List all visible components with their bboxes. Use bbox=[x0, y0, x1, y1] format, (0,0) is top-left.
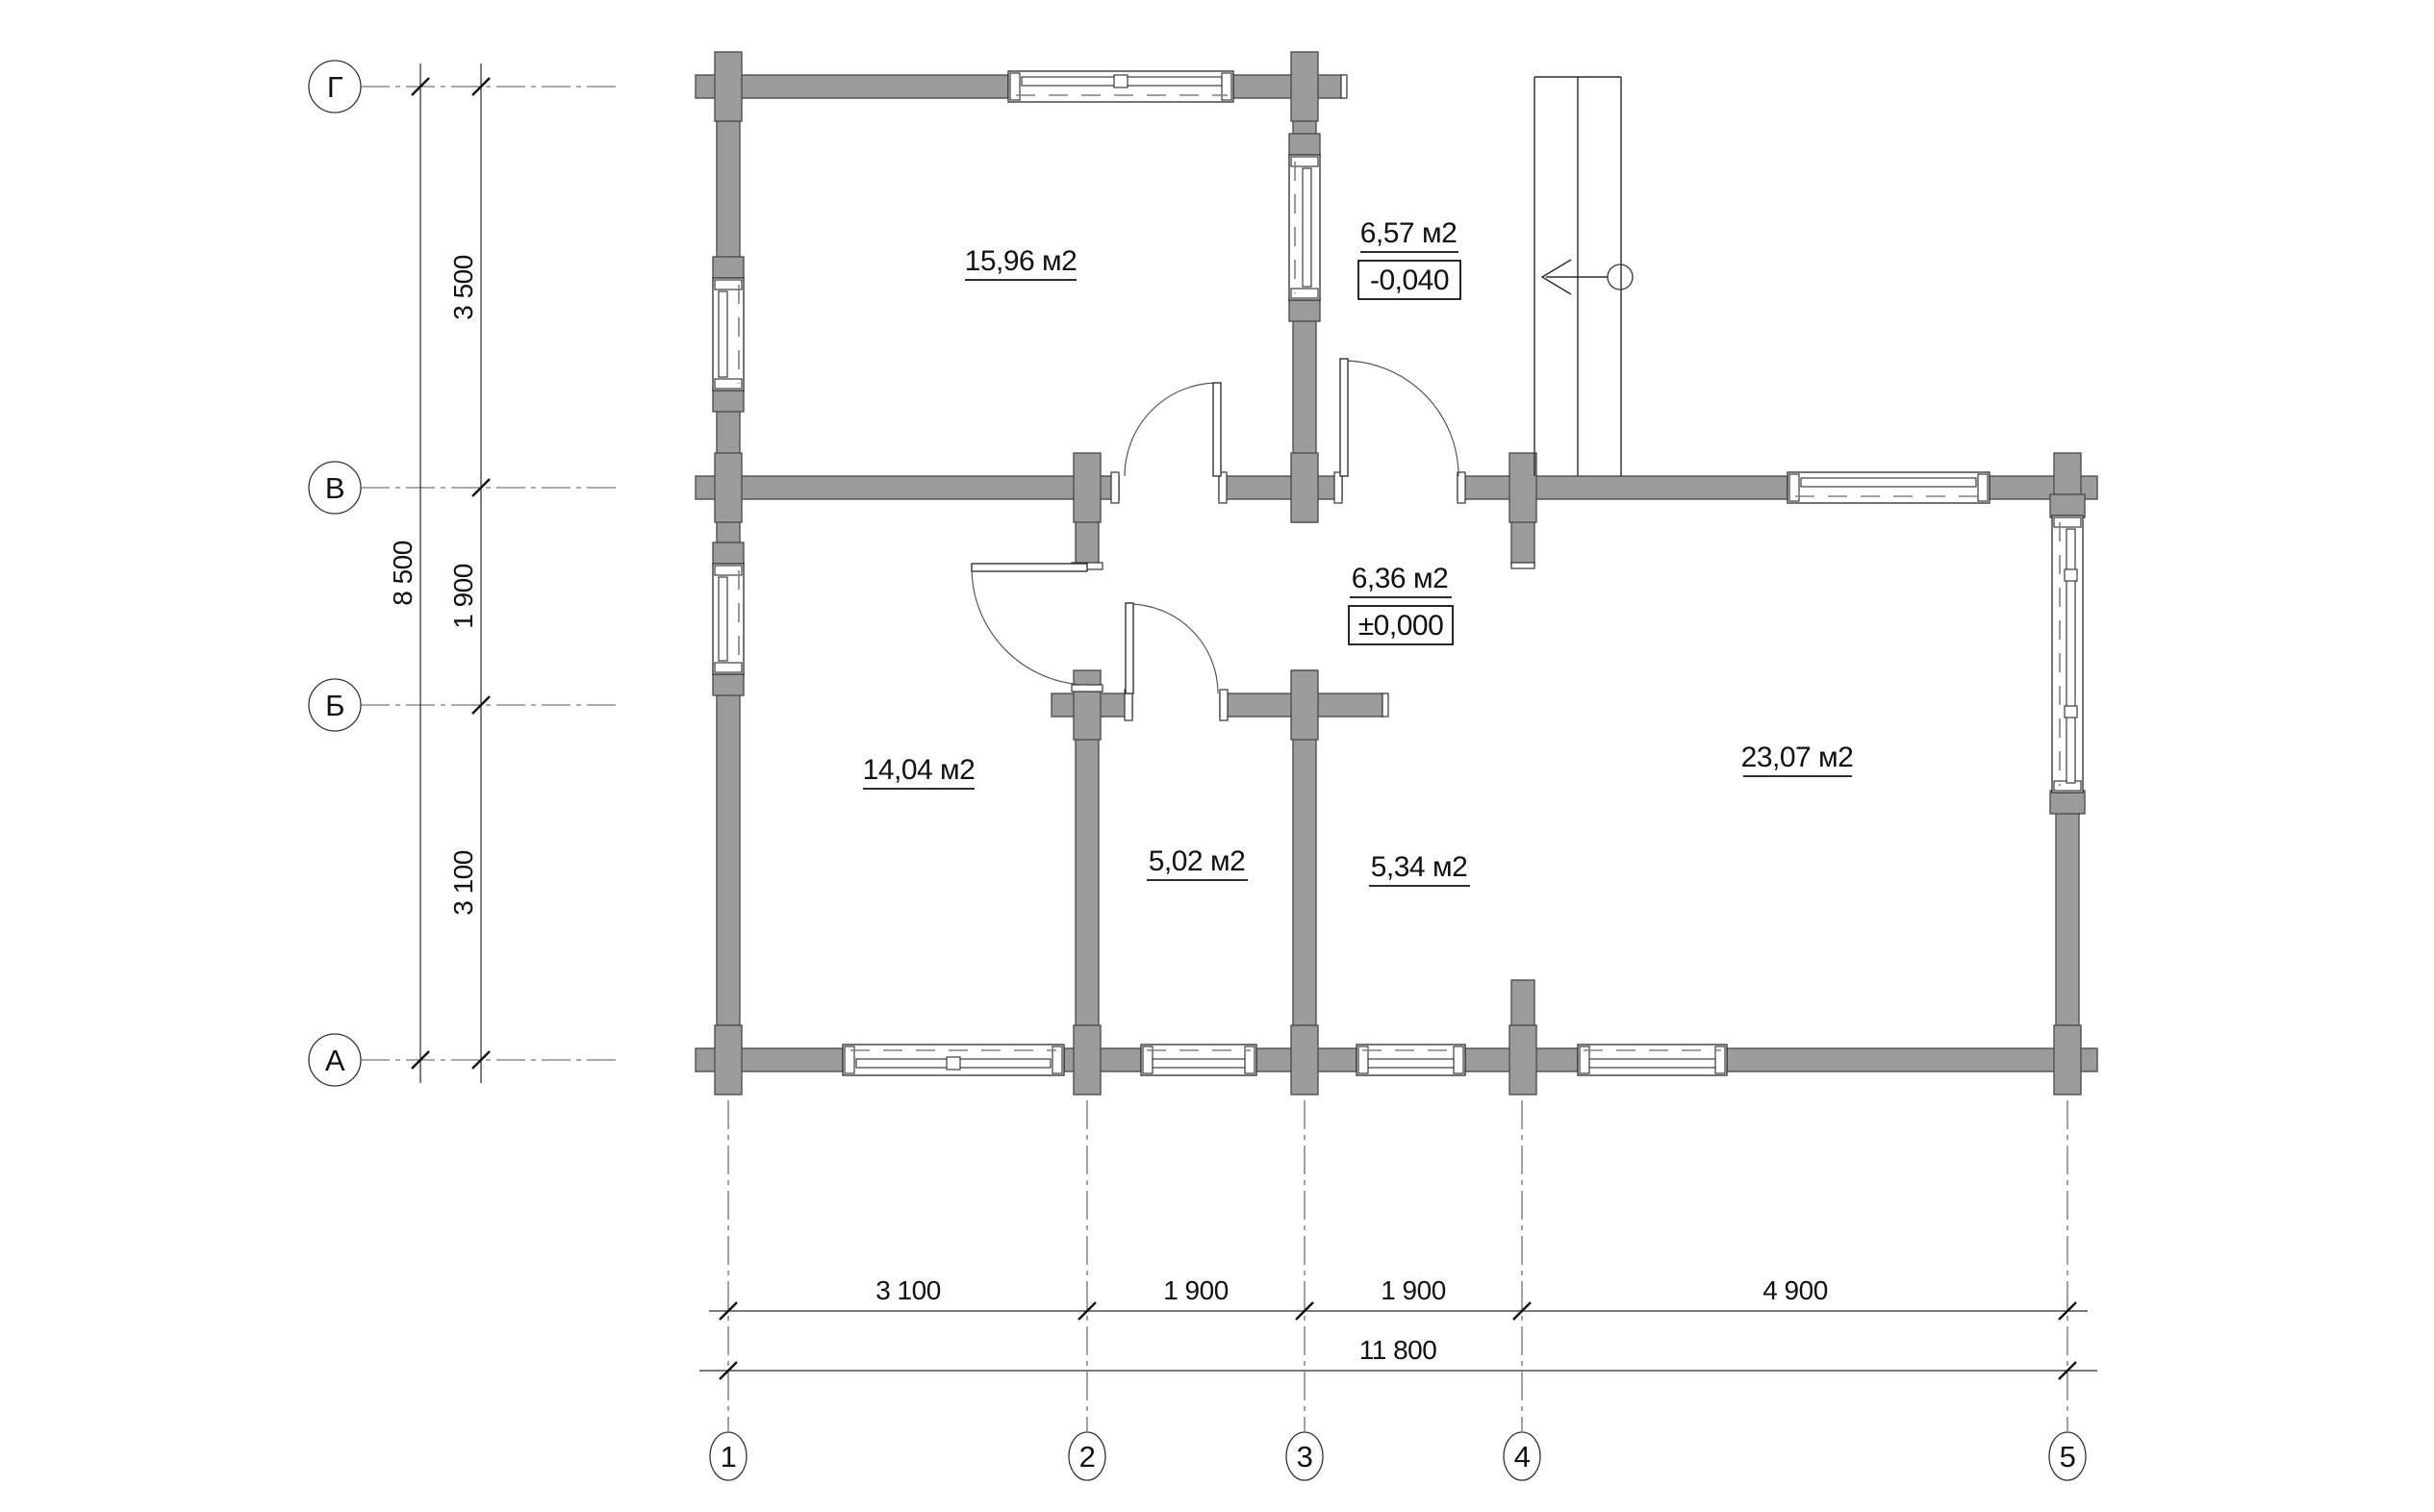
door-leaf bbox=[972, 564, 1087, 571]
post bbox=[715, 52, 742, 121]
window-flank bbox=[713, 389, 744, 412]
window-bottom-2 bbox=[1141, 1045, 1256, 1075]
post bbox=[1074, 453, 1101, 522]
window-frame bbox=[1454, 1046, 1463, 1073]
door-arc bbox=[1343, 361, 1458, 476]
window-flank bbox=[713, 672, 744, 695]
axis-label: Б bbox=[325, 689, 344, 722]
window-left-2 bbox=[713, 564, 744, 674]
dim-value-total: 11 800 bbox=[1359, 1335, 1437, 1365]
room-area-label: 23,07 м2 bbox=[1741, 742, 1854, 773]
bottom-axis-block: 3 100 1 900 1 900 4 900 11 800 1 2 3 4 5 bbox=[699, 1100, 2097, 1480]
axis-label: 2 bbox=[1079, 1440, 1096, 1474]
wall-segment bbox=[1458, 476, 1787, 499]
axis-label: 4 bbox=[1514, 1440, 1531, 1474]
window-top bbox=[1008, 71, 1233, 102]
level-mark: ±0,000 bbox=[1358, 610, 1444, 642]
window-right bbox=[2052, 516, 2083, 793]
post bbox=[2054, 1025, 2081, 1095]
window-opening bbox=[1787, 472, 1990, 503]
post bbox=[715, 1025, 742, 1095]
post bbox=[715, 453, 742, 522]
wall-segment bbox=[696, 75, 1008, 98]
door-arc bbox=[972, 569, 1087, 685]
window-frame bbox=[1978, 474, 1988, 501]
window-flank bbox=[2050, 791, 2085, 814]
window-frame bbox=[715, 379, 742, 389]
post bbox=[1291, 1025, 1318, 1095]
wall-segment bbox=[1727, 1048, 2097, 1071]
floor-plan-canvas: 15,96 м2 6,57 м2 -0,040 6,36 м2 ±0,000 1… bbox=[0, 0, 2434, 1512]
window-frame bbox=[2054, 517, 2081, 527]
door-arc bbox=[1128, 604, 1218, 693]
door-leaf bbox=[1340, 359, 1348, 476]
post bbox=[1074, 670, 1101, 740]
window-mullion bbox=[2065, 706, 2077, 718]
room-area-label: 6,36 м2 bbox=[1352, 563, 1449, 594]
dim-value: 3 100 bbox=[448, 850, 478, 916]
window-flank bbox=[713, 542, 744, 566]
axis-label: Г bbox=[327, 70, 343, 104]
window-sash bbox=[1368, 1059, 1454, 1068]
window-frame bbox=[715, 663, 742, 672]
window-v-wall bbox=[1787, 472, 1990, 503]
window-flank bbox=[1289, 134, 1320, 157]
stairs bbox=[1534, 77, 1633, 476]
door-jamb bbox=[1219, 472, 1227, 503]
post bbox=[1074, 1025, 1101, 1095]
room-area-label: 5,02 м2 bbox=[1149, 845, 1246, 877]
room-labels: 15,96 м2 6,57 м2 -0,040 6,36 м2 ±0,000 1… bbox=[863, 217, 1854, 886]
level-mark: -0,040 bbox=[1370, 265, 1449, 296]
window-mullion bbox=[1114, 75, 1128, 88]
window-flank bbox=[2050, 494, 2085, 517]
post bbox=[1291, 453, 1318, 522]
dim-value: 1 900 bbox=[448, 564, 478, 629]
door-jamb bbox=[1220, 690, 1228, 720]
wall-end-cap bbox=[1341, 75, 1347, 98]
post bbox=[1509, 453, 1536, 522]
window-sash bbox=[1801, 478, 1976, 487]
dim-value: 1 900 bbox=[1163, 1275, 1229, 1305]
wall-segment bbox=[1076, 685, 1099, 1071]
left-axis-block: Г В Б А 3 500 1 900 3 100 8 500 bbox=[309, 61, 621, 1086]
stair-start-circle bbox=[1608, 265, 1633, 290]
door-jamb bbox=[1458, 472, 1465, 503]
wall-end-cap bbox=[1382, 693, 1388, 717]
door-jamb bbox=[1125, 690, 1132, 720]
window-frame bbox=[715, 566, 742, 575]
room-area-label: 6,57 м2 bbox=[1360, 217, 1458, 249]
window-frame bbox=[1010, 73, 1020, 100]
post bbox=[1509, 1025, 1536, 1095]
axis-label: 3 bbox=[1297, 1440, 1313, 1474]
dim-value: 3 100 bbox=[875, 1275, 941, 1305]
wall-end-cap bbox=[1511, 563, 1534, 568]
post bbox=[1291, 52, 1318, 121]
axis-label: В bbox=[325, 471, 344, 505]
wall-segment bbox=[1233, 75, 1342, 98]
window-bottom-3 bbox=[1356, 1045, 1465, 1075]
door-leaf bbox=[1213, 383, 1221, 476]
window-mullion bbox=[947, 1057, 960, 1070]
window-bottom-1 bbox=[843, 1045, 1064, 1075]
door-porch bbox=[1334, 359, 1465, 503]
window-mullion bbox=[2065, 569, 2077, 581]
door-leaf bbox=[1126, 603, 1133, 693]
post bbox=[1291, 670, 1318, 740]
window-frame bbox=[715, 280, 742, 290]
axis-label: 1 bbox=[721, 1440, 737, 1474]
axis-label: 5 bbox=[2060, 1440, 2076, 1474]
dim-value-total: 8 500 bbox=[388, 541, 418, 606]
room-area-label: 14,04 м2 bbox=[863, 754, 976, 786]
room-area-label: 15,96 м2 bbox=[965, 245, 1078, 277]
door-arc bbox=[1125, 383, 1216, 476]
window-sash bbox=[2066, 529, 2075, 783]
axis-label: А bbox=[325, 1044, 345, 1077]
dim-value: 4 900 bbox=[1762, 1275, 1828, 1305]
window-sash bbox=[1153, 1059, 1245, 1068]
door-jamb bbox=[1111, 472, 1119, 503]
doors bbox=[972, 359, 1465, 720]
door-room-5-02 bbox=[1125, 603, 1228, 720]
window-sash bbox=[719, 291, 727, 377]
window-flank bbox=[1289, 298, 1320, 321]
dim-value: 1 900 bbox=[1381, 1275, 1446, 1305]
door-jamb bbox=[1334, 472, 1342, 503]
window-frame bbox=[1222, 73, 1231, 100]
window-sash bbox=[1303, 168, 1311, 287]
wall-segment bbox=[696, 476, 1119, 499]
floor-plan-drawing: 15,96 м2 6,57 м2 -0,040 6,36 м2 ±0,000 1… bbox=[0, 0, 2434, 1512]
window-left-1 bbox=[713, 278, 744, 391]
window-bottom-4 bbox=[1578, 1045, 1727, 1075]
window-sash bbox=[719, 577, 727, 661]
door-jamb bbox=[1072, 685, 1103, 692]
window-sash bbox=[1589, 1059, 1715, 1068]
window-axis3 bbox=[1289, 155, 1320, 300]
wall-segment bbox=[1219, 476, 1342, 499]
door-room1 bbox=[1111, 383, 1227, 503]
dim-value: 3 500 bbox=[448, 255, 478, 320]
window-flank bbox=[713, 257, 744, 280]
room-area-label: 5,34 м2 bbox=[1371, 851, 1468, 883]
